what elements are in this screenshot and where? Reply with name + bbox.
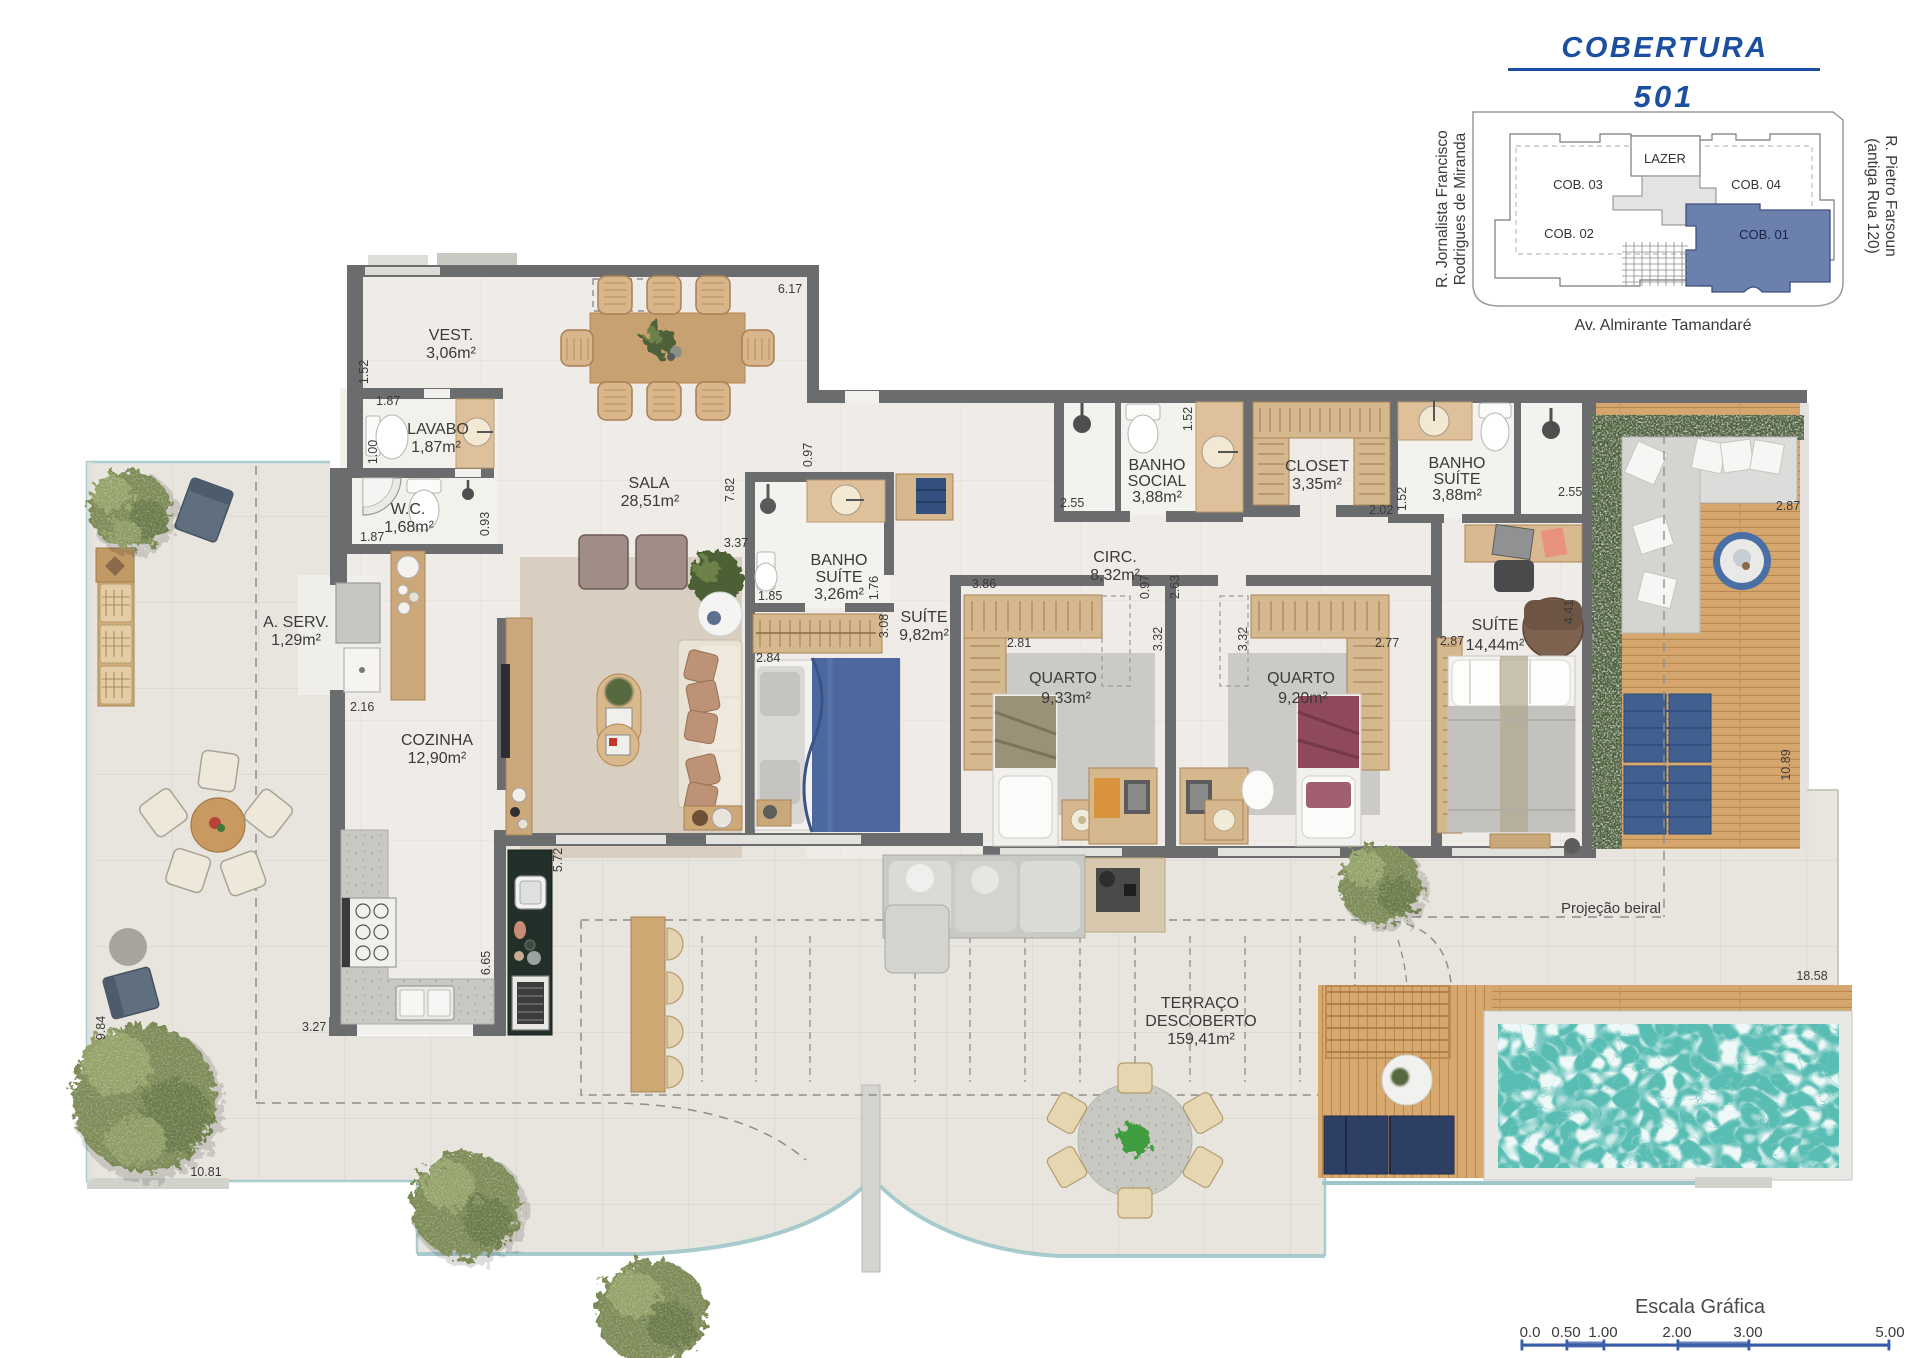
svg-text:QUARTO: QUARTO: [1267, 670, 1335, 687]
svg-text:0.50: 0.50: [1551, 1324, 1580, 1341]
svg-text:3,88m²: 3,88m²: [1432, 487, 1482, 504]
svg-text:9,33m²: 9,33m²: [1041, 690, 1091, 707]
svg-text:3.32: 3.32: [1236, 627, 1250, 651]
svg-text:(antiga Rua 120): (antiga Rua 120): [1864, 138, 1881, 253]
svg-text:1.76: 1.76: [867, 576, 881, 600]
svg-text:2.55: 2.55: [1558, 485, 1582, 499]
svg-text:BANHO: BANHO: [811, 552, 868, 569]
svg-text:3,88m²: 3,88m²: [1132, 489, 1182, 506]
svg-text:COB. 02: COB. 02: [1544, 226, 1594, 241]
svg-text:COB. 04: COB. 04: [1731, 177, 1781, 192]
svg-text:5.00: 5.00: [1875, 1324, 1904, 1341]
svg-text:2.84: 2.84: [756, 651, 780, 665]
svg-text:28,51m²: 28,51m²: [621, 493, 680, 510]
svg-text:2.63: 2.63: [1168, 575, 1182, 599]
svg-text:3,06m²: 3,06m²: [426, 345, 476, 362]
svg-text:1.85: 1.85: [758, 589, 782, 603]
svg-text:2.55: 2.55: [1060, 496, 1084, 510]
svg-text:9.84: 9.84: [94, 1016, 108, 1040]
svg-text:3.00: 3.00: [1733, 1324, 1762, 1341]
svg-text:LAZER: LAZER: [1644, 151, 1686, 166]
svg-text:18.58: 18.58: [1796, 969, 1827, 983]
svg-text:0.0: 0.0: [1520, 1324, 1541, 1341]
svg-text:1,87m²: 1,87m²: [411, 439, 461, 456]
svg-text:3,26m²: 3,26m²: [814, 586, 864, 603]
svg-text:14,44m²: 14,44m²: [1466, 637, 1525, 654]
svg-text:9,82m²: 9,82m²: [899, 627, 949, 644]
svg-text:0.97: 0.97: [801, 443, 815, 467]
svg-text:2.77: 2.77: [1375, 636, 1399, 650]
svg-text:7.82: 7.82: [723, 478, 737, 502]
svg-text:3.32: 3.32: [1151, 627, 1165, 651]
svg-text:12,90m²: 12,90m²: [408, 750, 467, 767]
svg-text:SUÍTE: SUÍTE: [900, 607, 947, 626]
svg-text:159,41m²: 159,41m²: [1167, 1031, 1235, 1048]
svg-text:3.27: 3.27: [302, 1020, 326, 1034]
svg-text:2.87: 2.87: [1440, 634, 1464, 648]
svg-text:SUÍTE: SUÍTE: [815, 567, 862, 586]
svg-text:501: 501: [1634, 79, 1695, 114]
svg-text:2.02: 2.02: [1369, 503, 1393, 517]
svg-text:Projeção beiral: Projeção beiral: [1561, 900, 1661, 917]
svg-text:9,20m²: 9,20m²: [1278, 690, 1328, 707]
svg-text:COZINHA: COZINHA: [401, 732, 473, 749]
svg-text:BANHO: BANHO: [1429, 455, 1486, 472]
svg-text:6.17: 6.17: [778, 282, 802, 296]
svg-text:1.00: 1.00: [1588, 1324, 1617, 1341]
svg-text:R. Pietro Farsoun: R. Pietro Farsoun: [1882, 135, 1899, 256]
svg-text:A. SERV.: A. SERV.: [263, 614, 329, 631]
svg-text:SUÍTE: SUÍTE: [1433, 469, 1480, 488]
svg-text:3.37: 3.37: [724, 536, 748, 550]
svg-text:CIRC.: CIRC.: [1093, 549, 1137, 566]
svg-text:3.08: 3.08: [877, 614, 891, 638]
svg-text:2.87: 2.87: [1776, 499, 1800, 513]
svg-text:3.86: 3.86: [972, 577, 996, 591]
svg-text:10.81: 10.81: [190, 1165, 221, 1179]
svg-text:COBERTURA: COBERTURA: [1561, 32, 1768, 64]
svg-text:DESCOBERTO: DESCOBERTO: [1145, 1013, 1256, 1030]
svg-text:SOCIAL: SOCIAL: [1128, 473, 1187, 490]
svg-text:6.65: 6.65: [479, 951, 493, 975]
svg-text:1.87: 1.87: [376, 394, 400, 408]
svg-text:1.87: 1.87: [360, 530, 384, 544]
svg-text:Av. Almirante Tamandaré: Av. Almirante Tamandaré: [1575, 317, 1752, 334]
svg-text:W.C.: W.C.: [391, 501, 426, 518]
svg-text:TERRAÇO: TERRAÇO: [1161, 995, 1239, 1012]
svg-text:Escala Gráfica: Escala Gráfica: [1635, 1296, 1766, 1318]
svg-text:BANHO: BANHO: [1129, 457, 1186, 474]
svg-text:SALA: SALA: [629, 475, 670, 492]
svg-text:0.97: 0.97: [1138, 575, 1152, 599]
svg-text:SUÍTE: SUÍTE: [1471, 615, 1518, 634]
svg-text:1.52: 1.52: [1395, 487, 1409, 511]
svg-text:3,35m²: 3,35m²: [1292, 476, 1342, 493]
svg-text:10.89: 10.89: [1779, 749, 1793, 780]
svg-text:1.52: 1.52: [1181, 407, 1195, 431]
svg-text:4.41: 4.41: [1562, 600, 1576, 624]
svg-text:5.72: 5.72: [551, 848, 565, 872]
svg-text:1,29m²: 1,29m²: [271, 632, 321, 649]
svg-text:QUARTO: QUARTO: [1029, 670, 1097, 687]
svg-text:0.93: 0.93: [478, 512, 492, 536]
svg-text:COB. 01: COB. 01: [1739, 227, 1789, 242]
svg-text:1,68m²: 1,68m²: [384, 519, 434, 536]
svg-text:2.00: 2.00: [1662, 1324, 1691, 1341]
svg-text:COB. 03: COB. 03: [1553, 177, 1603, 192]
svg-text:LAVABO: LAVABO: [407, 421, 469, 438]
svg-text:CLOSET: CLOSET: [1285, 458, 1349, 475]
svg-text:VEST.: VEST.: [429, 327, 473, 344]
svg-text:8,32m²: 8,32m²: [1090, 567, 1140, 584]
svg-text:2.16: 2.16: [350, 700, 374, 714]
svg-text:1.00: 1.00: [366, 440, 380, 464]
svg-text:1.52: 1.52: [357, 360, 371, 384]
svg-text:2.81: 2.81: [1007, 636, 1031, 650]
svg-text:Rodrigues de Miranda: Rodrigues de Miranda: [1452, 132, 1469, 285]
svg-text:R. Jornalista Francisco: R. Jornalista Francisco: [1434, 130, 1451, 288]
